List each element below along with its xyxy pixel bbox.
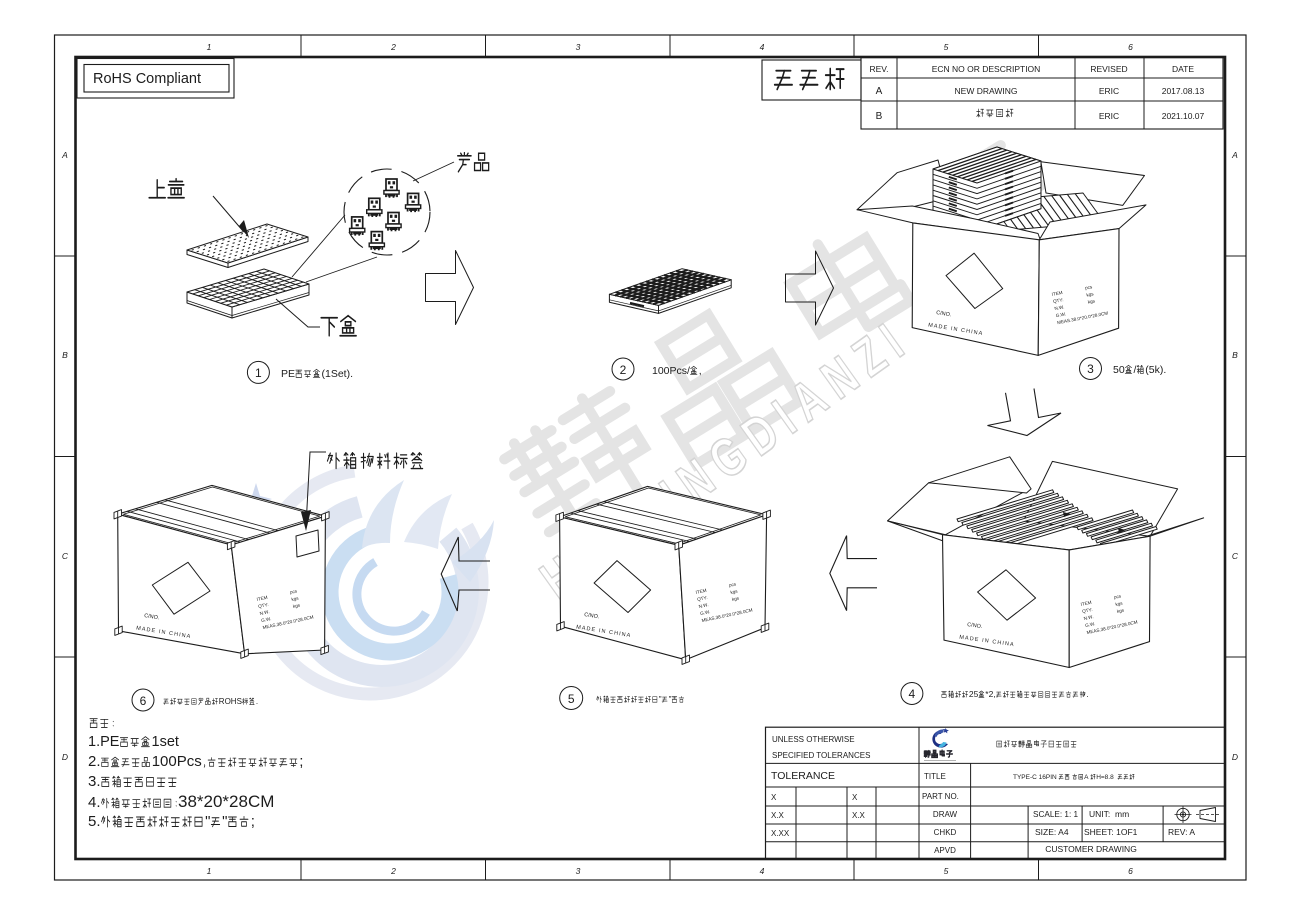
svg-text:3: 3 [576, 866, 581, 876]
svg-text:mm: mm [1115, 809, 1129, 819]
svg-text:C: C [1232, 551, 1239, 561]
svg-text:100Pcs/: 100Pcs/ [652, 365, 690, 377]
svg-text:38*20*28CM: 38*20*28CM [178, 792, 274, 811]
svg-text:X.X: X.X [852, 811, 866, 820]
svg-text:": " [669, 695, 672, 704]
svg-text:2021.10.07: 2021.10.07 [1162, 111, 1205, 121]
svg-text:2: 2 [390, 42, 396, 52]
svg-text:RoHS Compliant: RoHS Compliant [93, 71, 201, 87]
svg-text:50: 50 [1113, 364, 1125, 376]
svg-text:B: B [1232, 350, 1238, 360]
svg-text:(5k).: (5k). [1145, 364, 1166, 376]
svg-text:ERIC: ERIC [1099, 111, 1119, 121]
svg-text:TITLE: TITLE [924, 772, 946, 781]
svg-text:4.: 4. [88, 794, 101, 811]
svg-text:UNLESS OTHERWISE: UNLESS OTHERWISE [772, 735, 855, 744]
svg-text:B: B [62, 350, 68, 360]
svg-text:APVD: APVD [934, 846, 956, 855]
svg-text:,: , [699, 365, 702, 377]
svg-text:X.X: X.X [771, 811, 785, 820]
svg-text:B: B [876, 111, 883, 122]
svg-text:6: 6 [1128, 42, 1133, 52]
svg-text:A: A [1231, 150, 1238, 160]
svg-text:25: 25 [969, 689, 979, 699]
svg-text:X: X [771, 793, 777, 802]
svg-text:.: . [1086, 689, 1088, 699]
svg-text:A: A [61, 150, 68, 160]
svg-text:1: 1 [207, 42, 212, 52]
svg-text:3: 3 [576, 42, 581, 52]
svg-text:H=8.8: H=8.8 [1096, 774, 1114, 781]
svg-text:TYPE-C 16PIN: TYPE-C 16PIN [1013, 774, 1057, 781]
svg-text:ROHS: ROHS [219, 697, 242, 706]
svg-text:UNIT:: UNIT: [1089, 809, 1110, 819]
svg-text:.: . [256, 697, 258, 706]
svg-text:1: 1 [207, 866, 212, 876]
svg-text:NEW DRAWING: NEW DRAWING [955, 86, 1018, 96]
svg-text:SHEET: 1OF1: SHEET: 1OF1 [1084, 827, 1138, 837]
svg-text:ECN NO OR DESCRIPTION: ECN NO OR DESCRIPTION [932, 64, 1041, 74]
svg-text:A: A [876, 86, 883, 97]
svg-text:D: D [1232, 752, 1238, 762]
svg-text:2: 2 [620, 363, 627, 377]
svg-text:REVISED: REVISED [1090, 64, 1127, 74]
svg-text:4: 4 [760, 866, 765, 876]
svg-text:1: 1 [255, 366, 262, 380]
svg-text:4: 4 [760, 42, 765, 52]
svg-text:CHKD: CHKD [934, 828, 957, 837]
svg-text:5.: 5. [88, 813, 101, 830]
svg-text:4: 4 [909, 687, 916, 701]
svg-text:D: D [62, 752, 68, 762]
svg-text:": " [659, 695, 662, 704]
svg-text:2017.08.13: 2017.08.13 [1162, 86, 1205, 96]
svg-text:;: ; [299, 753, 303, 770]
svg-text:": " [222, 813, 227, 830]
svg-text:SPECIFIED TOLERANCES: SPECIFIED TOLERANCES [772, 751, 870, 760]
svg-text:SCALE: 1: 1: SCALE: 1: 1 [1033, 810, 1079, 819]
svg-text:3.: 3. [88, 773, 101, 790]
svg-text:3: 3 [1087, 362, 1094, 376]
svg-text:PART NO.: PART NO. [922, 792, 959, 801]
svg-text:;: ; [251, 813, 255, 830]
svg-text:TOLERANCE: TOLERANCE [771, 770, 835, 782]
svg-text:": " [205, 813, 210, 830]
svg-text:REV: A: REV: A [1168, 827, 1195, 837]
svg-text:X.XX: X.XX [771, 829, 790, 838]
svg-text:DRAW: DRAW [933, 810, 958, 819]
svg-text:6: 6 [140, 694, 147, 708]
svg-text:(1Set).: (1Set). [322, 368, 354, 380]
svg-text:X: X [852, 793, 858, 802]
svg-text:/: / [1134, 364, 1137, 376]
svg-text:2: 2 [390, 866, 396, 876]
svg-text:1set: 1set [152, 734, 179, 750]
svg-text:PE: PE [281, 368, 295, 380]
svg-text:6: 6 [1128, 866, 1133, 876]
svg-text:1.PE: 1.PE [88, 734, 120, 750]
svg-text:C: C [62, 551, 69, 561]
svg-text:ERIC: ERIC [1099, 86, 1119, 96]
svg-text:5: 5 [944, 42, 949, 52]
svg-text:DATE: DATE [1172, 64, 1194, 74]
svg-text:CUSTOMER DRAWING: CUSTOMER DRAWING [1045, 844, 1137, 854]
svg-text:2.: 2. [88, 753, 101, 770]
svg-text:A: A [1084, 774, 1089, 781]
svg-text:REV.: REV. [869, 64, 888, 74]
svg-text:5: 5 [944, 866, 949, 876]
svg-text:SIZE: A4: SIZE: A4 [1035, 827, 1069, 837]
svg-text:100Pcs: 100Pcs [152, 753, 202, 770]
svg-text:5: 5 [568, 692, 575, 706]
svg-text:*2,: *2, [985, 689, 995, 699]
